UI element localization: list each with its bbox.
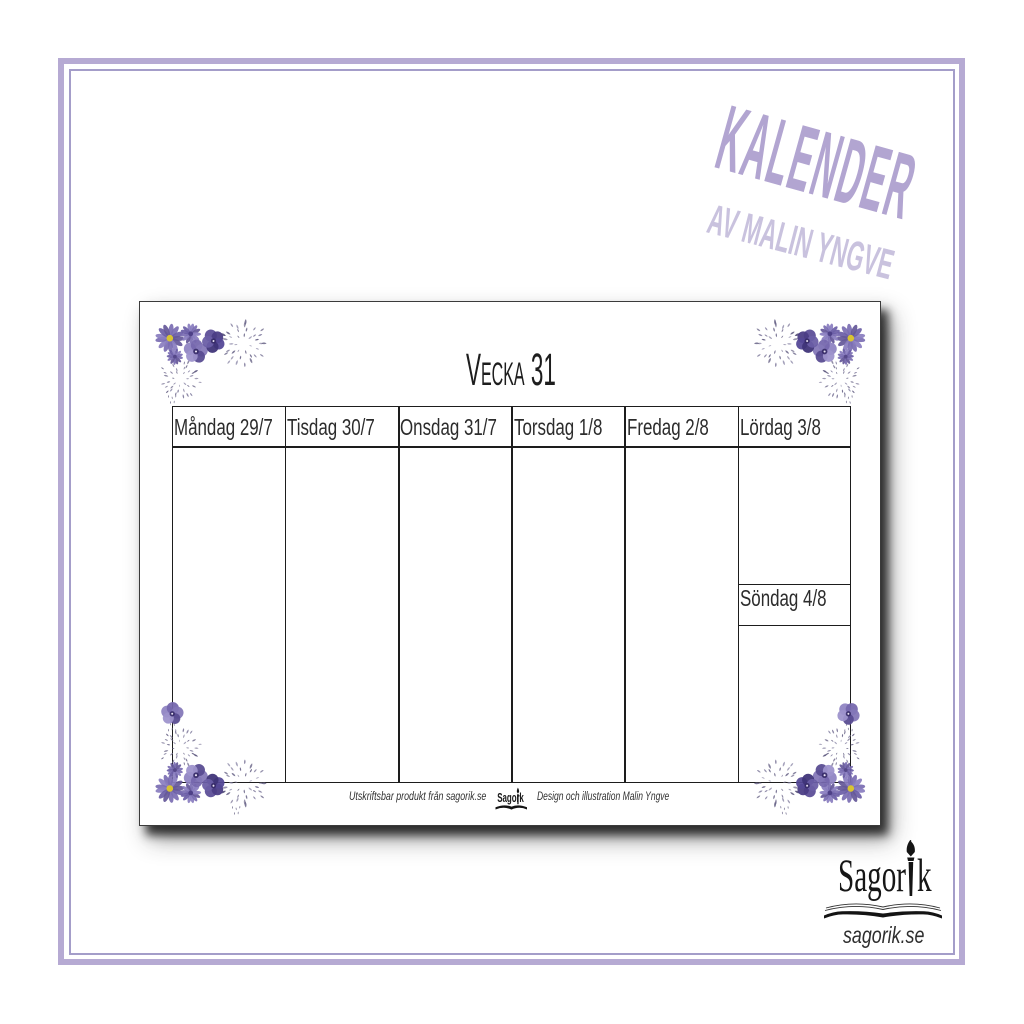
svg-text:Sagor: Sagor: [497, 791, 519, 805]
svg-text:k: k: [519, 791, 523, 805]
